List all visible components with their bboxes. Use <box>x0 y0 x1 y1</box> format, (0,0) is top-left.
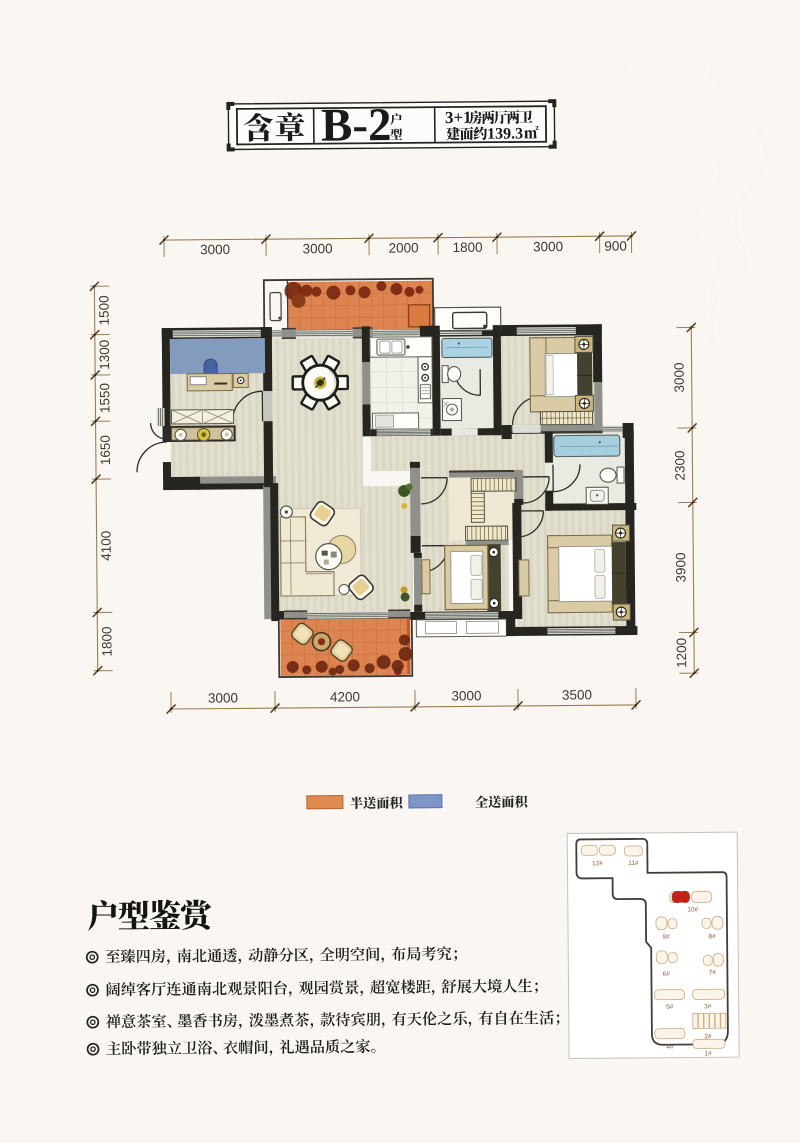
svg-text:12#: 12# <box>592 860 603 867</box>
svg-text:9#: 9# <box>662 934 670 941</box>
svg-text:4200: 4200 <box>330 689 360 704</box>
svg-text:1200: 1200 <box>674 638 689 668</box>
svg-text:3900: 3900 <box>673 552 688 582</box>
svg-text:3000: 3000 <box>672 362 687 392</box>
svg-text:1500: 1500 <box>96 295 111 325</box>
svg-text:1550: 1550 <box>97 383 112 413</box>
svg-text:11#: 11# <box>628 860 639 867</box>
svg-text:3000: 3000 <box>200 242 230 257</box>
svg-text:1300: 1300 <box>97 340 112 370</box>
svg-text:5#: 5# <box>666 1004 674 1011</box>
svg-text:2300: 2300 <box>672 450 687 480</box>
svg-text:3000: 3000 <box>533 239 563 254</box>
svg-text:1800: 1800 <box>452 240 482 255</box>
svg-text:4100: 4100 <box>99 531 114 561</box>
svg-text:10#: 10# <box>687 906 698 913</box>
svg-text:B-2: B-2 <box>321 99 392 152</box>
svg-text:7#: 7# <box>709 969 717 976</box>
svg-text:3000: 3000 <box>451 688 481 703</box>
svg-text:1650: 1650 <box>98 435 113 465</box>
svg-text:3000: 3000 <box>208 690 238 705</box>
svg-text:3500: 3500 <box>562 687 592 702</box>
svg-text:2000: 2000 <box>388 240 418 255</box>
svg-text:1800: 1800 <box>99 626 114 656</box>
svg-text:1#: 1# <box>704 1050 712 1057</box>
svg-text:139.3: 139.3 <box>487 125 523 142</box>
svg-text:3#: 3# <box>704 1003 712 1010</box>
svg-text:3000: 3000 <box>302 241 332 256</box>
svg-text:4#: 4# <box>666 1044 674 1051</box>
svg-text:6#: 6# <box>663 971 671 978</box>
svg-text:900: 900 <box>604 239 627 254</box>
svg-text:8#: 8# <box>708 933 716 940</box>
svg-text:3+1: 3+1 <box>445 108 472 127</box>
